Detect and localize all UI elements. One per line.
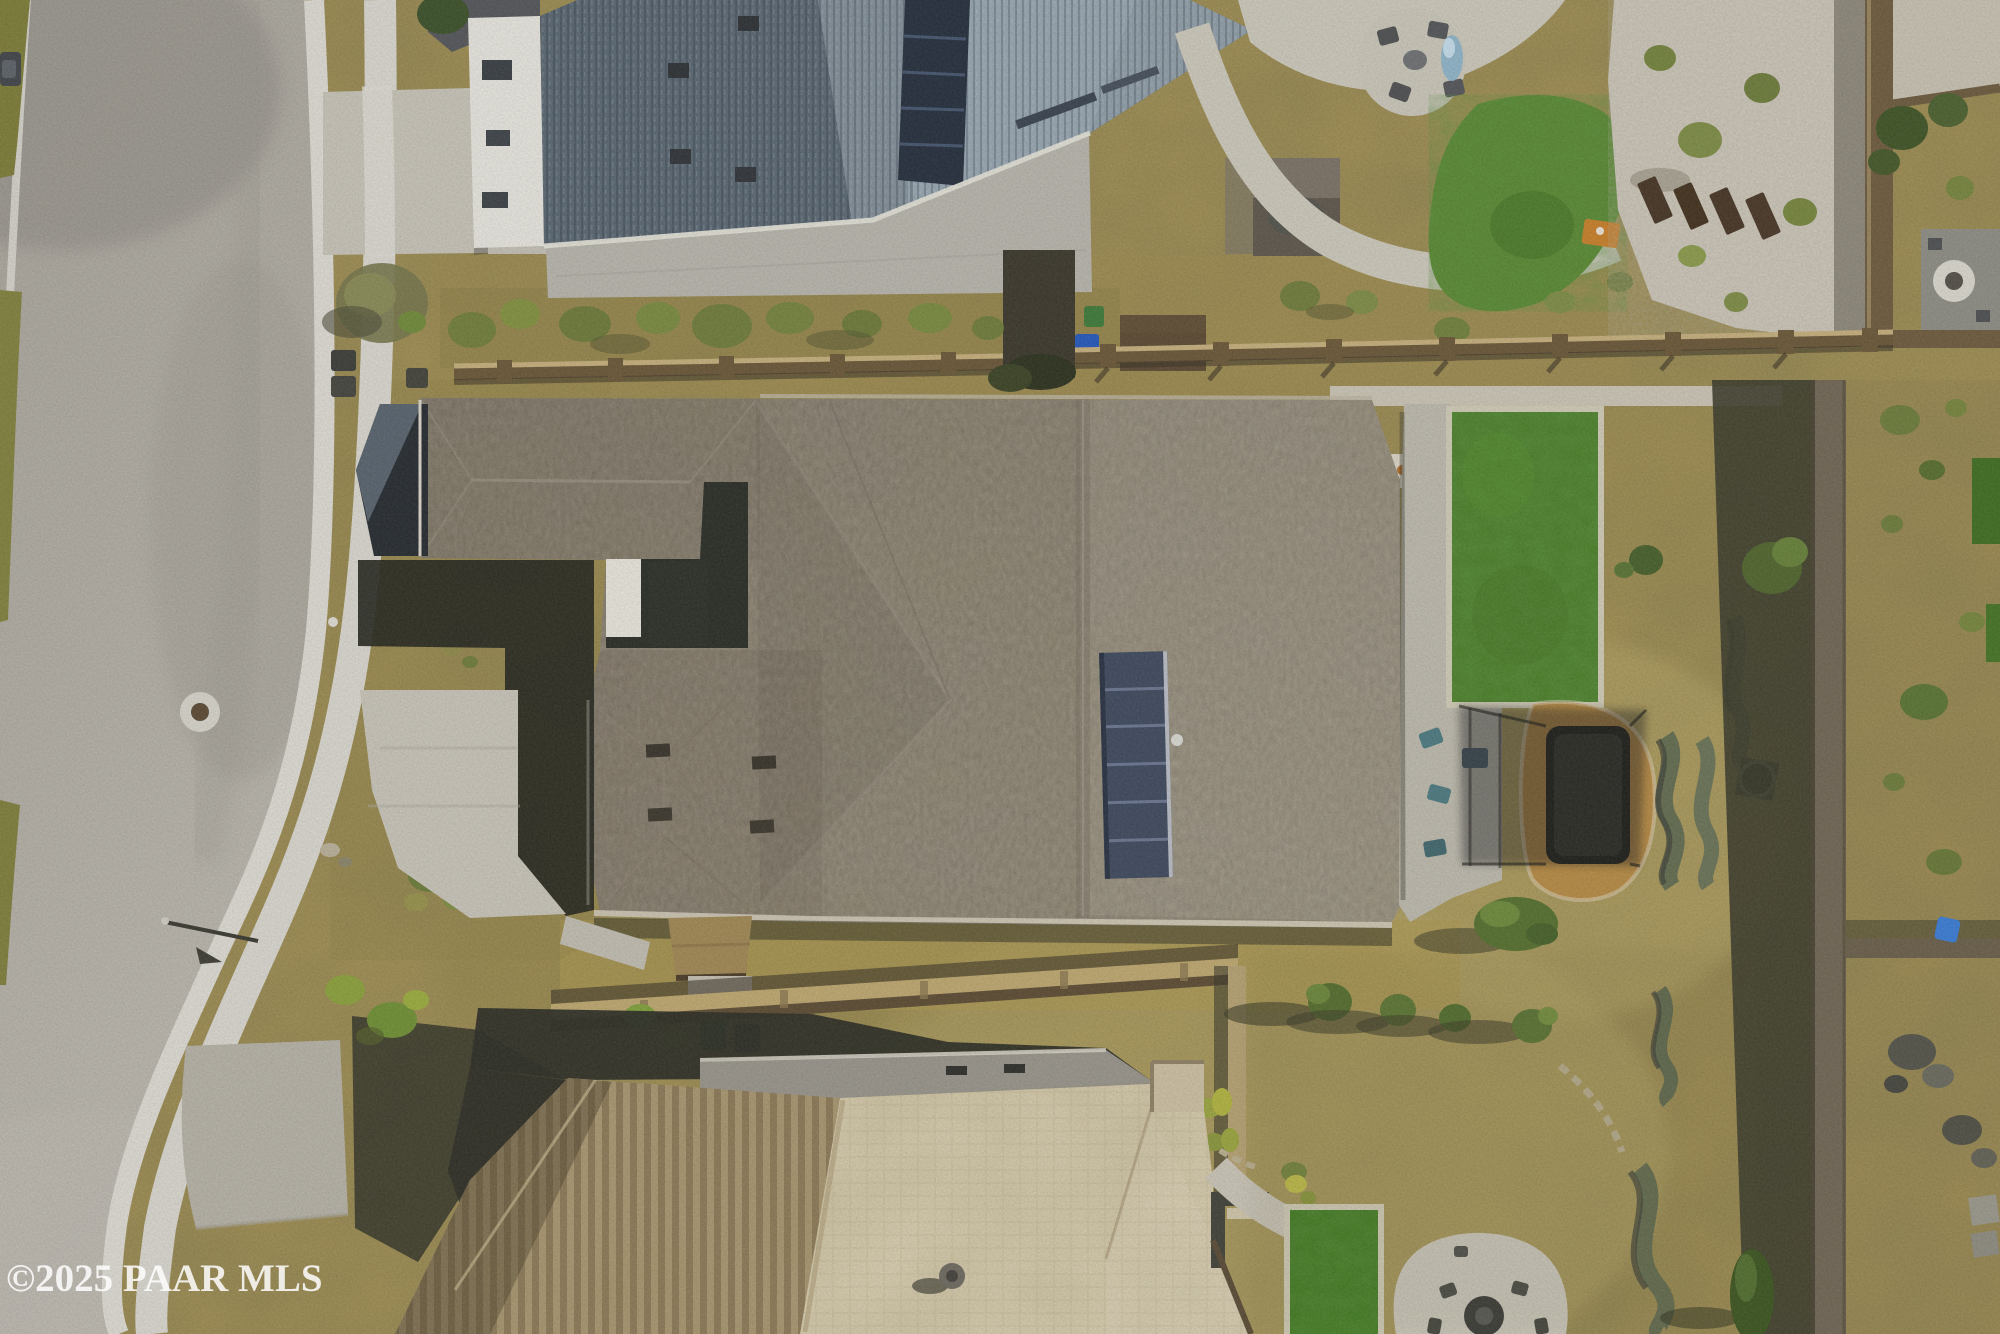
svg-text:©2025 PAAR MLS: ©2025 PAAR MLS xyxy=(6,1257,323,1300)
